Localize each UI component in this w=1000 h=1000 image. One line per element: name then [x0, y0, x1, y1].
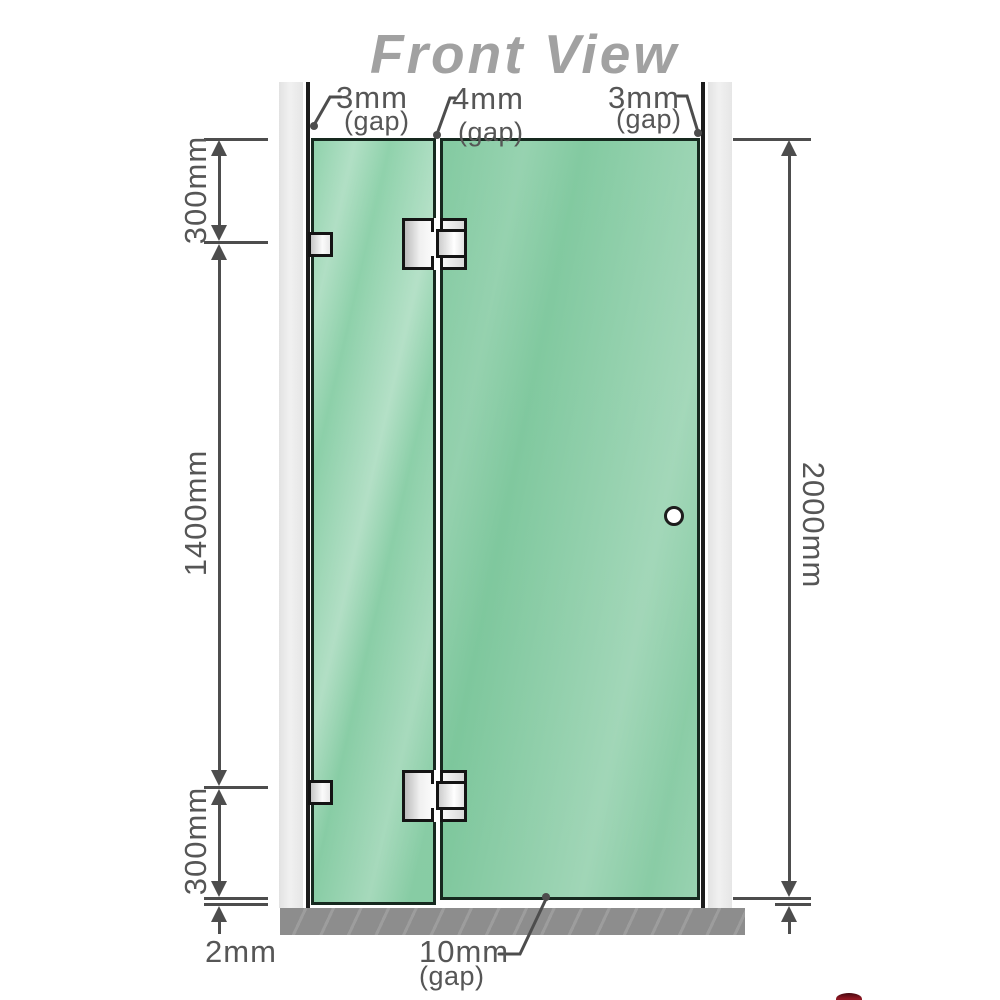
watermark-fragment	[836, 993, 862, 1000]
dim-line	[788, 918, 791, 934]
diagram-title: Front View	[370, 22, 679, 86]
panel-gap-slot-bottom	[431, 256, 443, 270]
door-glass-panel	[440, 138, 700, 900]
dim-label-300mm-top: 300mm	[178, 136, 214, 244]
gap-label-bottom-qualifier: (gap)	[419, 961, 485, 992]
hinge-knuckle	[436, 229, 467, 258]
dim-label-300mm-bottom: 300mm	[178, 787, 214, 895]
floor-base	[280, 908, 745, 935]
dim-line	[218, 801, 221, 883]
top-glass-hinge	[402, 218, 467, 270]
bottom-glass-hinge	[402, 770, 467, 822]
dim-tick	[733, 897, 811, 900]
bottom-wall-bracket	[308, 780, 333, 805]
gap-label-middle-qualifier: (gap)	[458, 117, 524, 148]
top-wall-bracket	[308, 232, 333, 257]
panel-gap-slot-bottom	[431, 808, 443, 822]
shower-screen-front-view-diagram: Front View	[0, 0, 1000, 1000]
gap-label-middle-value: 4mm	[452, 81, 524, 117]
dim-label-2000mm: 2000mm	[795, 462, 831, 589]
hinge-knuckle	[436, 781, 467, 810]
dim-arrow-down-icon	[781, 881, 797, 897]
dim-tick	[204, 897, 268, 900]
dim-tick	[733, 138, 811, 141]
right-wall-edge-line	[701, 82, 705, 908]
dim-arrow-down-icon	[211, 770, 227, 786]
gap-label-left-qualifier: (gap)	[344, 106, 410, 137]
dim-line	[218, 918, 221, 934]
dim-label-1400mm: 1400mm	[178, 450, 214, 577]
gap-label-right-qualifier: (gap)	[616, 104, 682, 135]
left-wall-channel	[279, 82, 303, 908]
dim-line	[218, 152, 221, 228]
dim-line	[218, 256, 221, 774]
dim-label-2mm: 2mm	[205, 934, 277, 970]
right-wall-channel	[708, 82, 732, 908]
dim-line	[788, 152, 791, 884]
door-knob	[664, 506, 684, 526]
